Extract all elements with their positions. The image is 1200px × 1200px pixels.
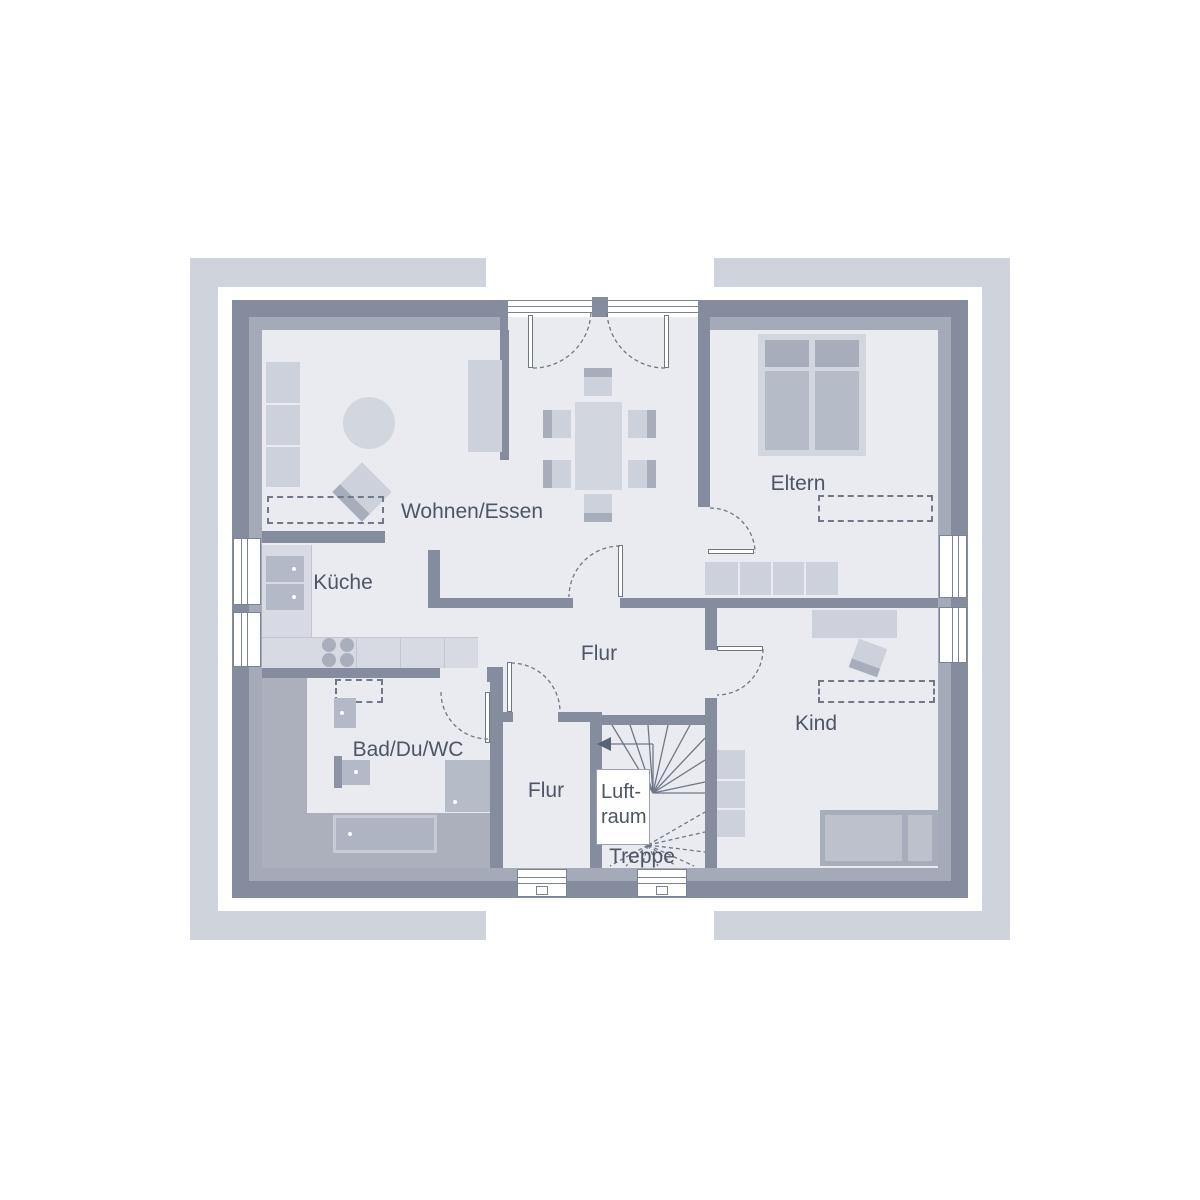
stair-direction-arrow-icon bbox=[597, 737, 611, 751]
room-label-flur-unten: Flur bbox=[528, 779, 564, 803]
room-label-bad-du-wc: Bad/Du/WC bbox=[353, 738, 464, 762]
floorplan-canvas: Luft- raum Wohnen/Essen Küche Eltern Flu… bbox=[0, 0, 1200, 1200]
door-arc-eltern bbox=[710, 508, 755, 553]
door-arc-wohnen-flur bbox=[569, 546, 620, 597]
room-label-treppe: Treppe bbox=[609, 845, 675, 869]
arcs-and-stair-layer bbox=[0, 0, 1200, 1200]
room-label-kind: Kind bbox=[795, 712, 837, 736]
luftraum-label-line2: raum bbox=[601, 805, 649, 830]
door-arc-flur-unten bbox=[511, 663, 560, 712]
door-arc-kind bbox=[717, 649, 763, 695]
room-label-flur-mitte: Flur bbox=[581, 642, 617, 666]
door-arc-entrance-right bbox=[607, 310, 665, 368]
luftraum-box: Luft- raum bbox=[596, 769, 650, 845]
room-label-wohnen-essen: Wohnen/Essen bbox=[401, 500, 543, 524]
luftraum-label-line1: Luft- bbox=[601, 780, 649, 805]
door-arc-bad bbox=[441, 692, 488, 739]
stair-tread bbox=[653, 725, 668, 793]
door-arc-entrance-left bbox=[533, 310, 591, 368]
room-label-kueche: Küche bbox=[313, 571, 373, 595]
stair-tread-below bbox=[648, 812, 705, 845]
stair-tread-below bbox=[648, 832, 705, 845]
room-label-eltern: Eltern bbox=[771, 472, 826, 496]
